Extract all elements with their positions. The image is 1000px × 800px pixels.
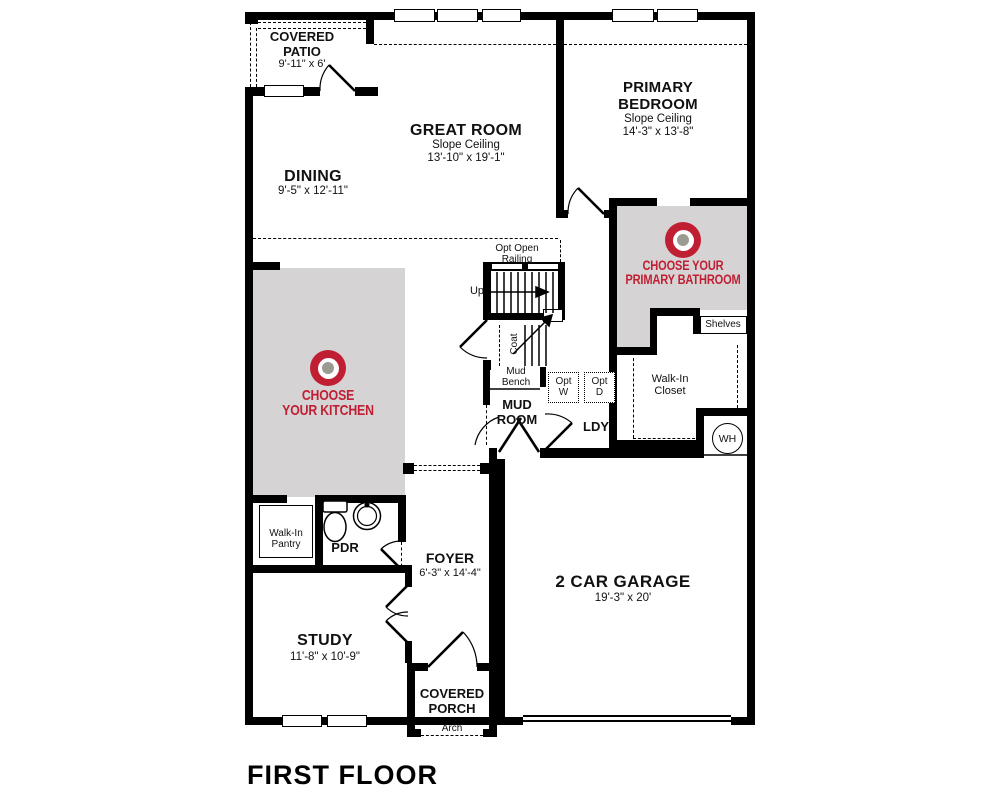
wall (245, 495, 287, 503)
room-label-primary-bedroom: PRIMARY BEDROOM (618, 80, 698, 114)
closet-shelf-dashed (633, 358, 634, 438)
door-opening (497, 447, 540, 459)
wall (407, 663, 415, 737)
room-dims-dining: 9'-5" x 12'-11" (278, 185, 348, 198)
wall (696, 408, 755, 416)
room-label-shelves: Shelves (705, 319, 741, 330)
wall (556, 210, 568, 218)
wall (407, 663, 428, 671)
room-label-laundry: LDY (583, 420, 609, 435)
door-study-double (386, 585, 408, 643)
garage-door-line (523, 720, 731, 722)
wall (690, 198, 747, 206)
wall (403, 463, 414, 474)
target-icon (673, 230, 694, 251)
patio-roof-dashed (258, 22, 366, 23)
slope-ceiling-dashed (564, 44, 747, 45)
room-label-pantry: Walk-In Pantry (269, 528, 303, 550)
wall (245, 565, 412, 573)
room-label-great-room: GREAT ROOM (410, 122, 522, 140)
room-label-covered-porch: COVERED PORCH (420, 687, 484, 716)
opt-dryer-label: D (596, 388, 603, 399)
room-dims-covered-patio: 9'-11" x 6' (278, 58, 325, 70)
room-label-foyer: FOYER (426, 551, 474, 567)
kitchen-choice-hotspot[interactable] (310, 350, 346, 386)
window (327, 715, 367, 727)
door-laundry (545, 414, 572, 450)
wall (405, 573, 412, 587)
door-front (428, 632, 477, 667)
wall (245, 88, 253, 725)
wall (477, 663, 497, 671)
window (612, 9, 654, 22)
window (657, 9, 698, 22)
wall (405, 641, 412, 663)
wall (303, 87, 320, 96)
wall (731, 717, 755, 725)
wall (489, 448, 505, 663)
slope-ceiling-dashed (374, 44, 556, 45)
wall (245, 87, 265, 96)
room-dims-foyer: 6'-3" x 14'-4" (419, 567, 481, 579)
page-title: FIRST FLOOR (247, 760, 438, 791)
coat-dashed (499, 325, 500, 366)
porch-edge-dashed (421, 735, 483, 736)
room-note-primary-bedroom: Slope Ceiling (624, 113, 692, 126)
mud-opening-dashed (486, 405, 487, 445)
wall (483, 368, 490, 405)
coat-label: Coat (509, 333, 520, 354)
railing-dashed (560, 240, 561, 262)
closet-shelf-dashed (633, 438, 700, 439)
room-label-powder: PDR (331, 541, 358, 556)
floor-plan: COVERED PATIO 9'-11" x 6' GREAT ROOM Slo… (0, 0, 1000, 800)
mud-bench-label: Mud Bench (502, 366, 530, 388)
water-heater-label: WH (719, 433, 737, 445)
wall (366, 20, 374, 44)
foyer-opening-dashed (414, 465, 480, 466)
up-label: Up (470, 285, 484, 297)
room-label-garage: 2 CAR GARAGE (555, 572, 690, 591)
wall (540, 367, 546, 387)
garage-door-line (523, 715, 731, 717)
wall (747, 12, 755, 725)
closet-shelf-dashed (737, 345, 738, 413)
window (264, 85, 304, 97)
room-dims-primary-bedroom: 14'-3" x 13'-8" (623, 126, 694, 139)
opt-washer-label: W (559, 388, 568, 399)
window (394, 9, 435, 22)
wall (497, 663, 505, 725)
wall (398, 495, 406, 542)
wall (407, 729, 421, 737)
room-label-dining: DINING (284, 168, 342, 186)
wall (480, 463, 491, 474)
room-dims-study: 11'-8" x 10'-9" (290, 651, 360, 664)
wall (355, 87, 378, 96)
wall (609, 198, 617, 355)
room-label-walk-in-closet: Walk-In Closet (652, 373, 689, 398)
window (482, 9, 521, 22)
wall (245, 12, 258, 24)
sink-icon (354, 503, 381, 530)
wall (696, 408, 704, 458)
target-icon (318, 358, 339, 379)
bathroom-choice-label[interactable]: CHOOSE YOUR (642, 258, 723, 273)
room-dims-garage: 19'-3" x 20' (595, 592, 651, 605)
toilet-icon (323, 501, 347, 542)
wall (315, 495, 405, 503)
wall (617, 198, 657, 206)
kitchen-choice-label[interactable]: YOUR KITCHEN (282, 403, 374, 420)
water-heater-badge: WH (712, 423, 743, 454)
wall (609, 347, 657, 355)
room-note-great-room: Slope Ceiling (432, 139, 500, 152)
railing-note: Opt Open Railing (495, 243, 538, 265)
pdr-opening-dashed (401, 542, 402, 572)
opt-washer-label: Opt (555, 377, 571, 388)
wall (252, 262, 280, 270)
wall (556, 20, 564, 216)
wall (489, 663, 497, 737)
stair-newel (543, 309, 563, 322)
foyer-opening-dashed (414, 470, 480, 471)
opt-dryer-label: Opt (591, 377, 607, 388)
opt-washer-box: Opt W (548, 372, 579, 403)
door-primary-bedroom (568, 188, 604, 214)
bathroom-choice-label[interactable]: PRIMARY BATHROOM (625, 272, 740, 287)
door-understair (460, 320, 487, 358)
room-label-mud-room: MUD ROOM (497, 398, 537, 427)
wall (497, 717, 523, 725)
room-dims-great-room: 13'-10" x 19'-1" (427, 152, 504, 165)
wall (483, 729, 497, 737)
wall (609, 440, 704, 448)
room-note-arch: Arch (442, 723, 463, 734)
bathroom-choice-hotspot[interactable] (665, 222, 701, 258)
window (282, 715, 322, 727)
stair-rail (483, 313, 545, 320)
wall (315, 503, 323, 565)
room-label-study: STUDY (297, 632, 353, 650)
patio-roof-dashed (256, 28, 257, 87)
opt-dryer-box: Opt D (584, 372, 615, 403)
window (437, 9, 478, 22)
patio-roof-dashed (250, 22, 251, 87)
wall (693, 308, 700, 334)
room-label-covered-patio: COVERED PATIO (270, 30, 334, 59)
ceiling-break-dashed (253, 238, 558, 239)
